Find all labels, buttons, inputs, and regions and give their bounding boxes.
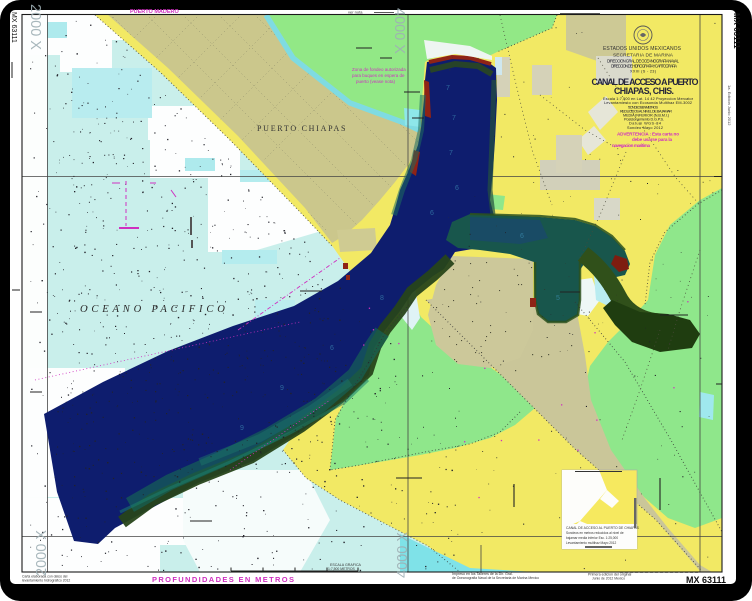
- svg-text:4000 X: 4000 X: [391, 8, 407, 54]
- svg-text:2000 X: 2000 X: [34, 530, 50, 576]
- svg-text:OCEANO PACIFICO: OCEANO PACIFICO: [80, 304, 228, 315]
- svg-text:PUERTO CHIAPAS: PUERTO CHIAPAS: [257, 124, 347, 133]
- svg-text:bajamar media inferior Esc.: bajamar media inferior Esc. 1:25,000: [566, 536, 618, 540]
- svg-text:6: 6: [520, 233, 524, 240]
- svg-text:puerto (vease nota): puerto (vease nota): [356, 79, 396, 84]
- svg-text:8: 8: [380, 295, 384, 302]
- svg-text:7: 7: [452, 115, 456, 122]
- svg-text:6: 6: [430, 210, 434, 217]
- svg-text:MX 63111: MX 63111: [732, 13, 741, 49]
- svg-text:MX 63111: MX 63111: [10, 12, 17, 43]
- svg-text:Levantamiento multihaz Mayo: Levantamiento multihaz Mayo 2012: [566, 541, 617, 545]
- svg-text:7: 7: [446, 85, 450, 92]
- svg-text:Zona de fondeo autorizada: Zona de fondeo autorizada: [352, 67, 406, 72]
- svg-text:ESTADOS UNIDOS MEXICANOS: ESTADOS UNIDOS MEXICANOS: [603, 46, 682, 52]
- svg-text:Sondeos en metros reducidos al: Sondeos en metros reducidos al nivel de: [566, 531, 624, 535]
- svg-text:CHIAPAS, CHIS.: CHIAPAS, CHIS.: [614, 86, 674, 96]
- svg-text:ver nota: ver nota: [348, 10, 363, 15]
- svg-text:1:7,500 METROS: 1:7,500 METROS: [328, 567, 355, 571]
- svg-text:4000 X: 4000 X: [395, 532, 411, 578]
- svg-text:Sondeo Mayo 2012: Sondeo Mayo 2012: [627, 126, 663, 130]
- svg-text:PROFUNDIDADES EN METROS: PROFUNDIDADES EN METROS: [152, 575, 294, 584]
- svg-text:DIRECCION DE HIDROGRAFIA Y CAR: DIRECCION DE HIDROGRAFIA Y CARTOGRAFIA: [611, 64, 677, 69]
- svg-text:para buques en espera de: para buques en espera de: [352, 73, 405, 78]
- svg-text:PUERTO MADERO: PUERTO MADERO: [130, 9, 180, 15]
- svg-text:ADVERTENCIA : Esta carta no: ADVERTENCIA : Esta carta no: [617, 132, 679, 137]
- svg-text:1a. Edicion Junio 2012: 1a. Edicion Junio 2012: [727, 85, 732, 126]
- svg-text:de Oceanografia Naval de la Se: de Oceanografia Naval de la Secretaria d…: [452, 576, 539, 580]
- svg-text:MX 63111: MX 63111: [686, 575, 726, 585]
- svg-text:navegacion maritima: navegacion maritima: [612, 143, 650, 148]
- svg-text:CANAL DE ACCESO AL PUERTO DE C: CANAL DE ACCESO AL PUERTO DE CHIAPAS: [566, 526, 640, 530]
- svg-text:9: 9: [280, 385, 284, 392]
- svg-text:levantamiento hidrografico 201: levantamiento hidrografico 2012: [22, 579, 70, 583]
- svg-text:5: 5: [556, 295, 560, 302]
- svg-text:9: 9: [240, 425, 244, 432]
- svg-text:XXIII (S - 23): XXIII (S - 23): [630, 70, 657, 74]
- svg-text:Junio de 2012 Mexico: Junio de 2012 Mexico: [592, 577, 625, 581]
- svg-text:6: 6: [330, 345, 334, 352]
- svg-text:2000 X: 2000 X: [27, 4, 43, 50]
- svg-text:Levantamiento con Ecosonda Mul: Levantamiento con Ecosonda Multihaz EM-3…: [604, 101, 692, 105]
- svg-text:7: 7: [449, 150, 453, 157]
- svg-text:6: 6: [455, 185, 459, 192]
- svg-text:debe usarse para la: debe usarse para la: [632, 137, 672, 142]
